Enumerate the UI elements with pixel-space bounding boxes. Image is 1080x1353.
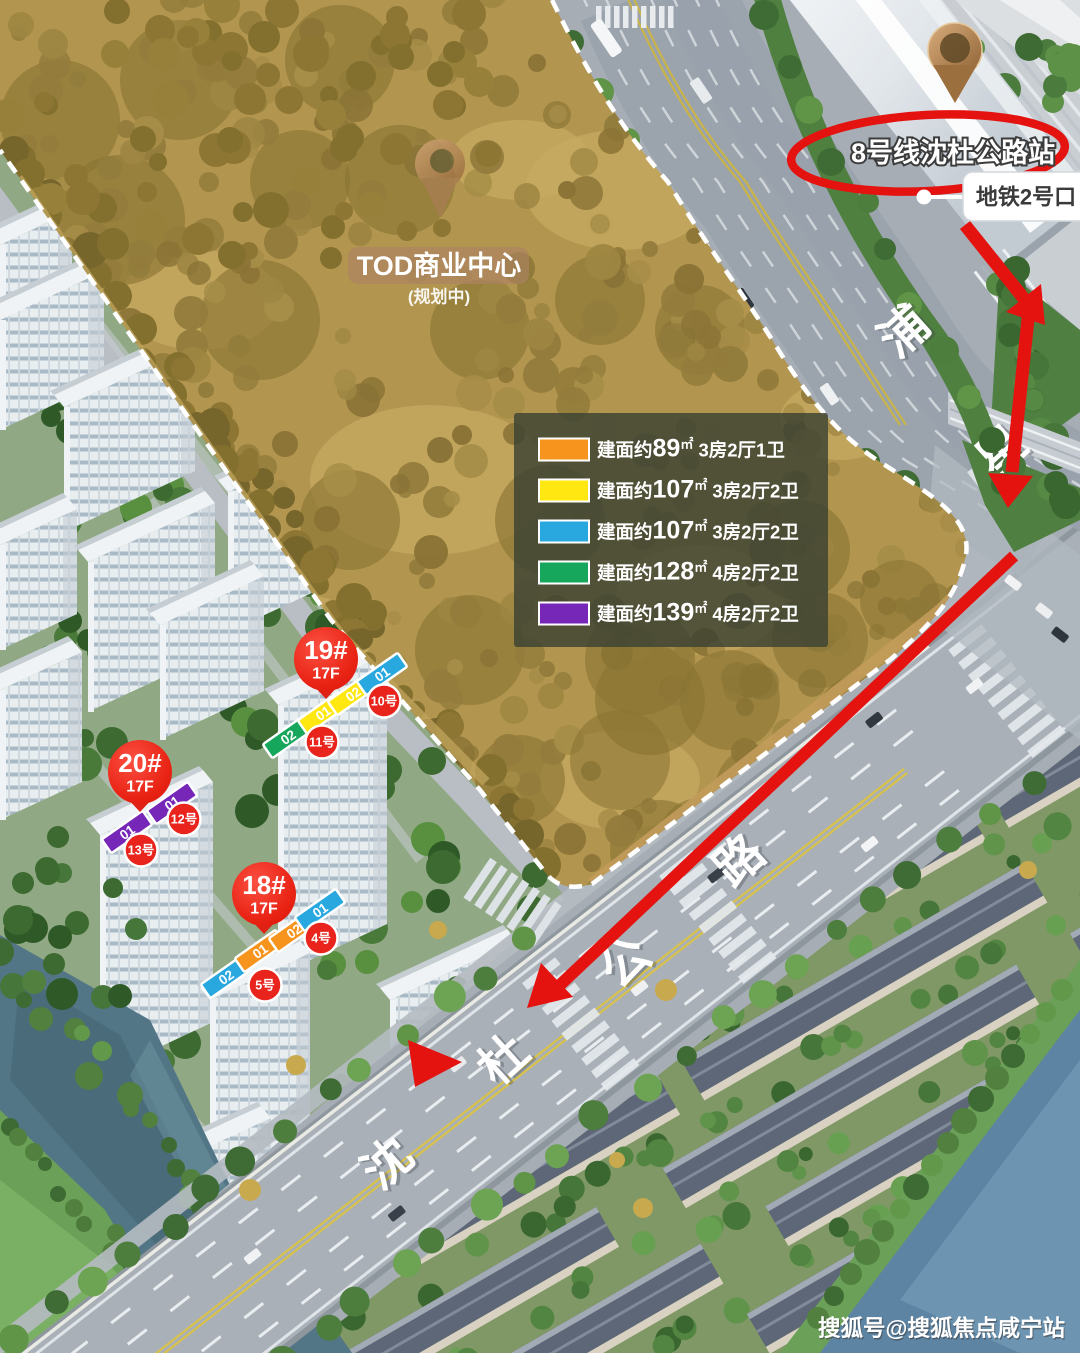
svg-text:17F: 17F [126, 779, 154, 796]
svg-text:17F: 17F [250, 901, 278, 918]
svg-text:5号: 5号 [255, 978, 274, 993]
svg-text:20#: 20# [118, 748, 162, 778]
svg-text:13号: 13号 [128, 843, 154, 858]
svg-text:10号: 10号 [371, 694, 397, 709]
svg-text:12号: 12号 [171, 812, 197, 827]
svg-text:4号: 4号 [311, 931, 330, 946]
svg-text:8号线沈杜公路站: 8号线沈杜公路站 [851, 137, 1055, 168]
svg-text:18#: 18# [242, 870, 286, 900]
svg-text:TOD商业中心: TOD商业中心 [357, 251, 522, 281]
svg-text:19#: 19# [304, 635, 348, 665]
svg-text:搜狐号@搜狐焦点咸宁站: 搜狐号@搜狐焦点咸宁站 [818, 1315, 1065, 1341]
svg-text:地铁2号口: 地铁2号口 [976, 185, 1076, 210]
svg-text:17F: 17F [312, 666, 340, 683]
svg-text:(规划中): (规划中) [408, 287, 470, 307]
svg-text:11号: 11号 [309, 735, 335, 750]
